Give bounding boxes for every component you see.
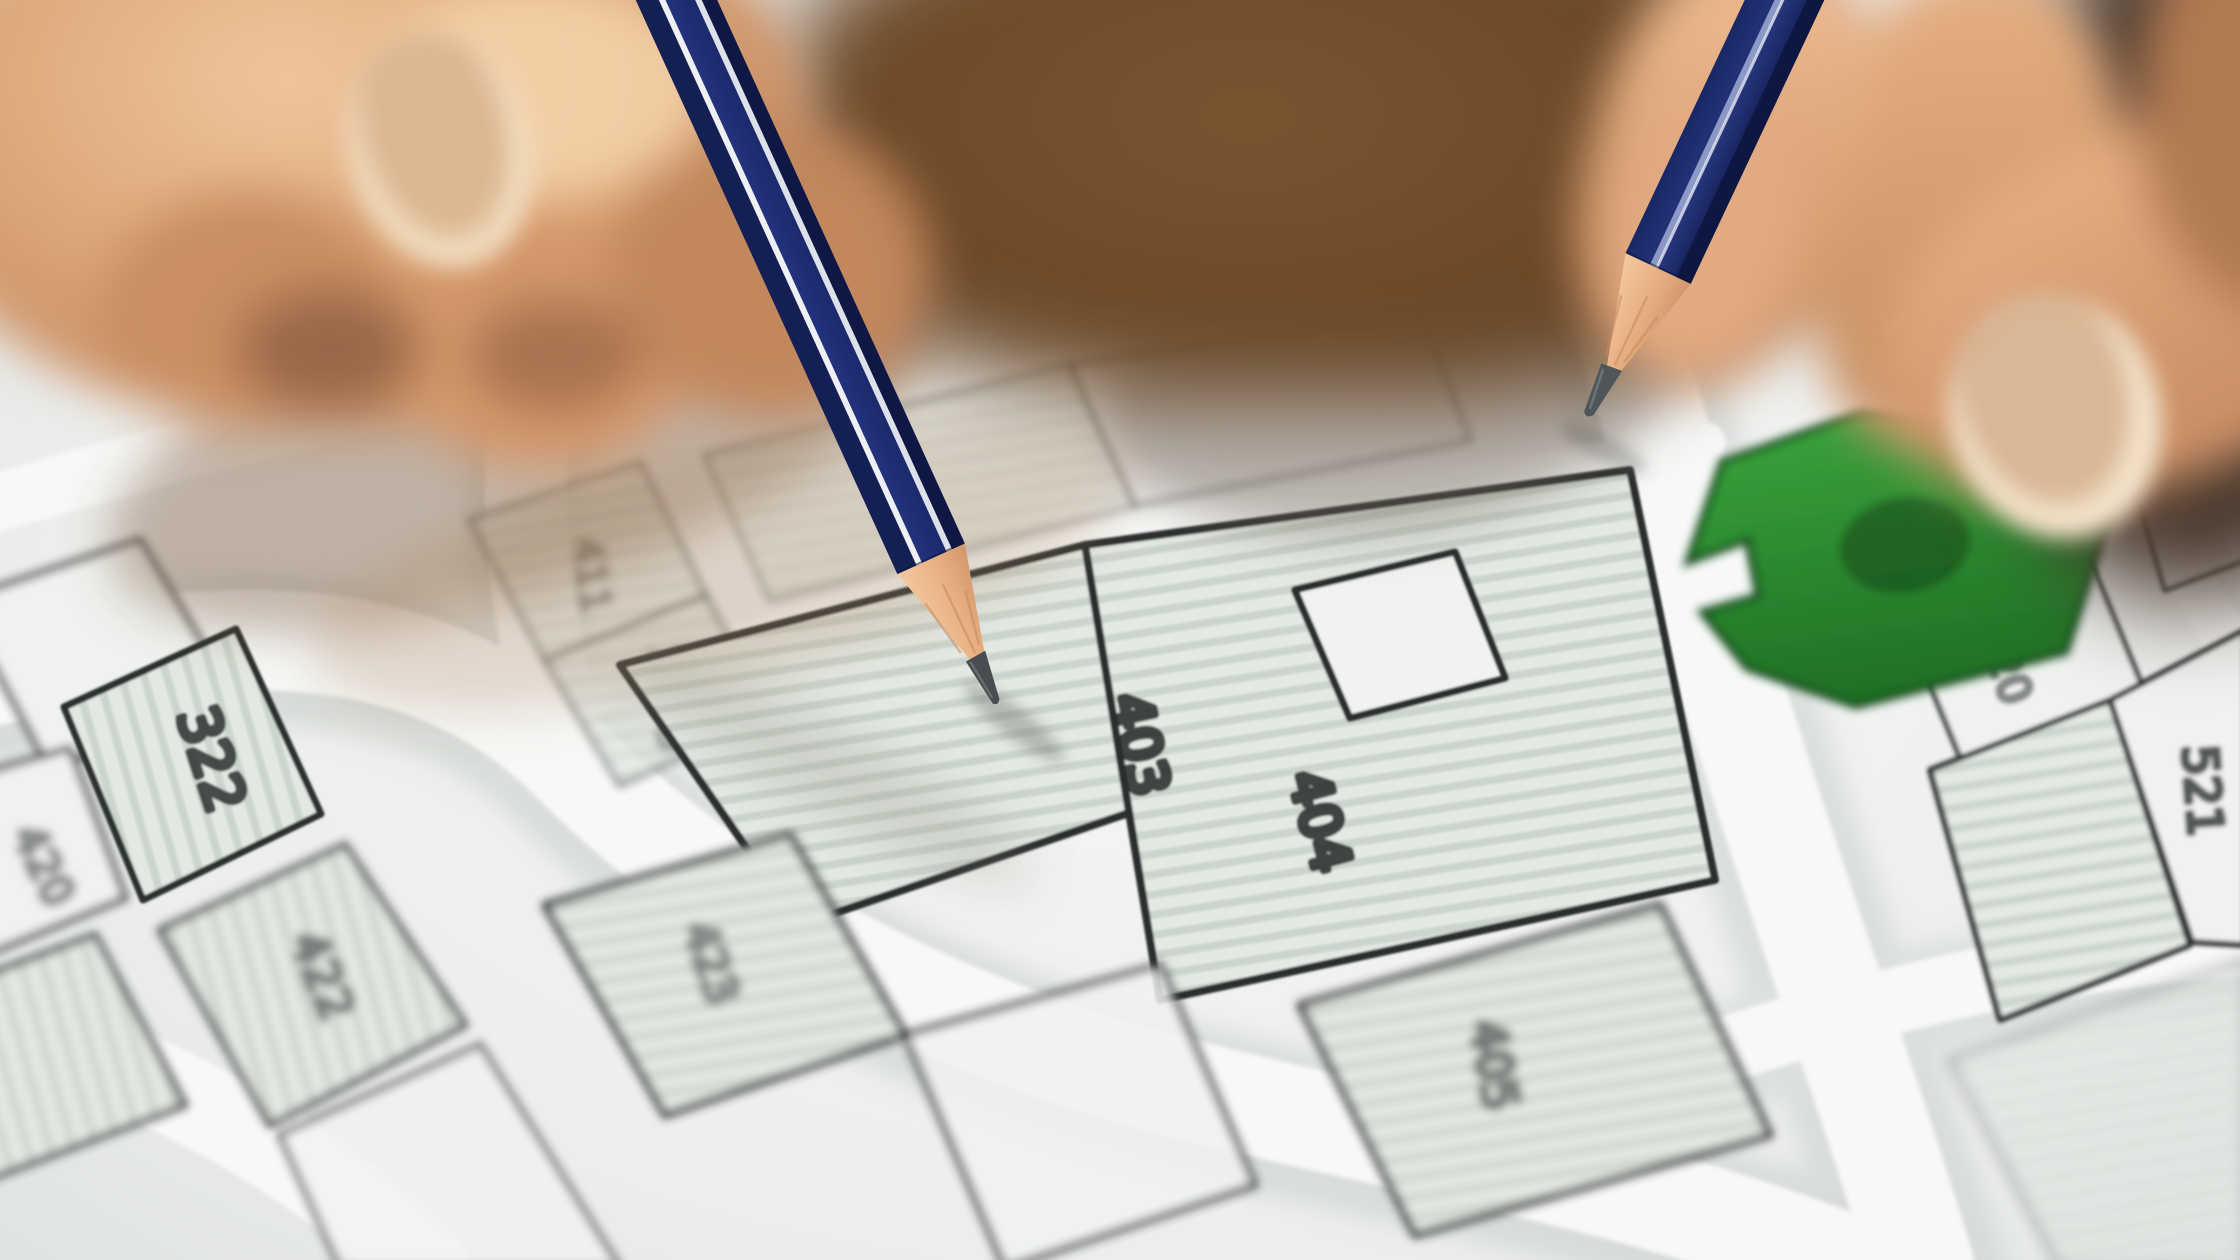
right-pencil-graphite <box>1578 362 1622 422</box>
pencils-layer <box>0 0 2240 1260</box>
right-pencil <box>1556 0 1849 432</box>
left-pencil <box>598 0 1031 719</box>
left-pencil-graphite <box>965 651 1007 709</box>
right-pencil-shaft <box>1626 0 1850 284</box>
left-pencil-face-dark <box>598 0 917 574</box>
photo-scene: 420 422 322 411 1175 403 404 <box>0 0 2240 1260</box>
